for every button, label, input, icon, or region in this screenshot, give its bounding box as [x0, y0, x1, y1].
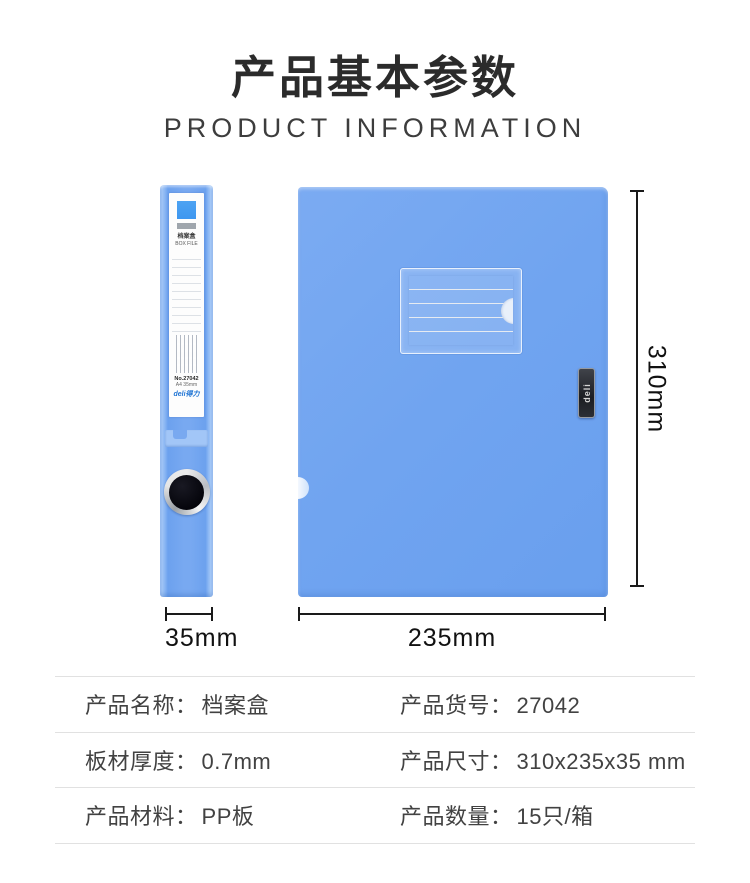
finger-hole [164, 469, 210, 515]
spine-label-gray-bar [177, 223, 196, 229]
spec-label: 产品材料： [85, 804, 198, 829]
spec-label: 板材厚度： [85, 749, 198, 774]
front-edge-notch [298, 477, 309, 499]
spec-product-material: 产品材料：PP板 [85, 799, 400, 831]
dimension-line-235mm [298, 613, 606, 615]
spine-label-title-cn: 档案盒 [177, 234, 195, 241]
spine-label-fine-print [176, 335, 198, 373]
pocket-thumb-notch [501, 298, 513, 324]
spine-closure-tab [165, 430, 208, 447]
spec-value: 档案盒 [202, 693, 270, 718]
spec-product-name: 产品名称：档案盒 [85, 688, 400, 720]
spec-label: 产品尺寸： [400, 749, 513, 774]
dimension-front-height: 310mm [636, 190, 638, 587]
dimension-label-35mm: 35mm [165, 624, 213, 653]
product-info-page: 产品基本参数 PRODUCT INFORMATION 档案盒 BOX FILE … [0, 0, 750, 883]
finger-hole-inner [169, 475, 204, 510]
spec-product-quantity: 产品数量：15只/箱 [400, 799, 695, 831]
table-row: 产品材料：PP板 产品数量：15只/箱 [55, 788, 695, 844]
table-row: 板材厚度：0.7mm 产品尺寸：310x235x35 mm [55, 733, 695, 789]
spec-product-size: 产品尺寸：310x235x35 mm [400, 744, 695, 776]
spine-view-image: 档案盒 BOX FILE No.27042 A4 35mm deli得力 [160, 185, 213, 597]
spec-label: 产品名称： [85, 693, 198, 718]
dimension-line-310mm [636, 190, 638, 587]
spec-board-thickness: 板材厚度：0.7mm [85, 744, 400, 776]
front-view-image: deli [298, 187, 608, 597]
spec-product-number: 产品货号：27042 [400, 688, 695, 720]
dimension-front-width: 235mm [298, 613, 606, 653]
dimension-label-235mm: 235mm [298, 624, 606, 653]
spec-value: 310x235x35 mm [517, 749, 686, 774]
label-pocket [400, 268, 522, 354]
deli-badge: deli [578, 368, 595, 418]
spine-label-ruled-lines [172, 252, 201, 332]
label-pocket-card [409, 276, 513, 345]
spine-label-title-en: BOX FILE [175, 241, 198, 247]
spec-value: PP板 [202, 804, 255, 829]
spec-value: 0.7mm [202, 749, 272, 774]
spec-label: 产品数量： [400, 804, 513, 829]
dimension-line-35mm [165, 613, 213, 615]
spec-label: 产品货号： [400, 693, 513, 718]
dimension-label-310mm: 310mm [642, 344, 671, 432]
deli-badge-text: deli [582, 383, 592, 403]
dimension-spine-width: 35mm [165, 613, 213, 653]
spec-value: 15只/箱 [517, 804, 594, 829]
deli-brand-logo: deli得力 [173, 391, 199, 399]
spec-value: 27042 [517, 693, 581, 718]
table-row: 产品名称：档案盒 产品货号：27042 [55, 677, 695, 733]
specs-table: 产品名称：档案盒 产品货号：27042 板材厚度：0.7mm 产品尺寸：310x… [55, 676, 695, 844]
spine-label-color-swatch [177, 201, 196, 219]
spine-label: 档案盒 BOX FILE No.27042 A4 35mm deli得力 [169, 193, 204, 417]
spine-label-spec: A4 35mm [176, 382, 197, 388]
